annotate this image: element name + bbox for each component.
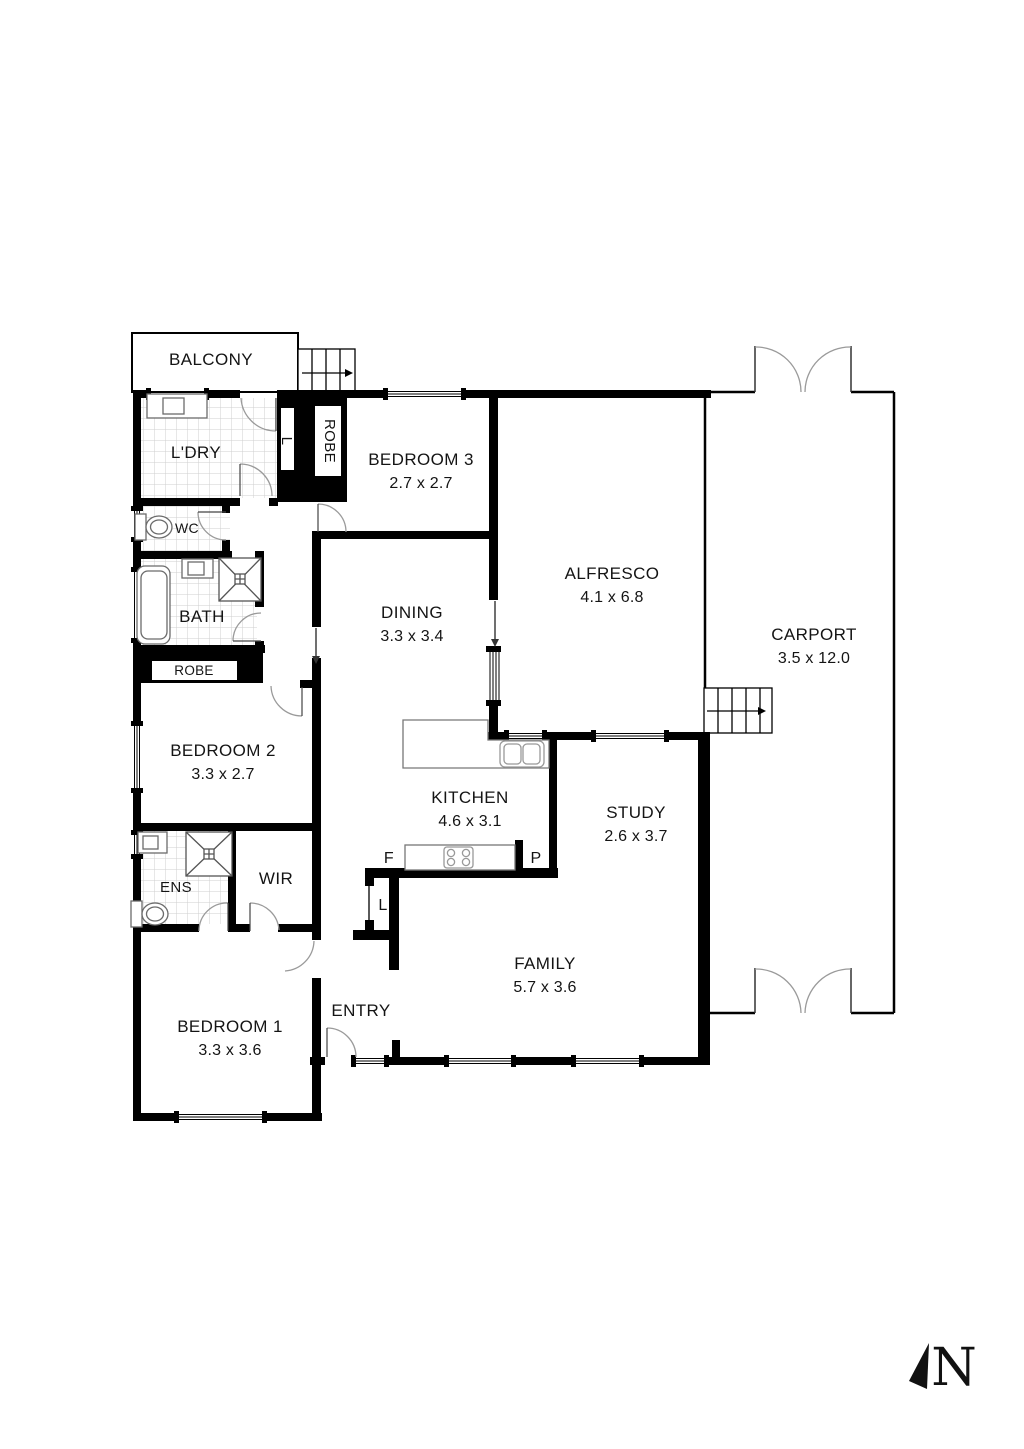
- room-label-wir: WIR: [259, 867, 293, 891]
- room-label-bath: BATH: [179, 605, 225, 629]
- bathtub-icon: [137, 566, 170, 644]
- room-dims: 3.5 x 12.0: [771, 647, 857, 671]
- room-label-dining: DINING 3.3 x 3.4: [380, 601, 443, 649]
- bath-shower-icon: [219, 558, 261, 601]
- room-name: STUDY: [604, 801, 667, 825]
- room-name: CARPORT: [771, 623, 857, 647]
- compass-north-label: N: [931, 1338, 977, 1398]
- closet-label-robe-bed2: ROBE: [174, 659, 213, 683]
- bath-vanity-icon: [182, 559, 213, 578]
- room-dims: 2.7 x 2.7: [368, 472, 474, 496]
- room-name: FAMILY: [513, 952, 576, 976]
- ens-vanity-icon: [138, 832, 167, 853]
- room-label-alfresco: ALFRESCO 4.1 x 6.8: [565, 562, 660, 610]
- room-label-family: FAMILY 5.7 x 3.6: [513, 952, 576, 1000]
- kitchen-sink-icon: [500, 741, 544, 767]
- room-name: BEDROOM 3: [368, 448, 474, 472]
- room-name: BEDROOM 2: [170, 739, 276, 763]
- floor-plan-drawing: [0, 0, 1024, 1449]
- room-dims: 2.6 x 3.7: [604, 825, 667, 849]
- closet-label-linen-hall: L: [378, 894, 387, 918]
- room-label-kitchen: KITCHEN 4.6 x 3.1: [431, 786, 508, 834]
- closet-label-linen-upper: L: [274, 437, 298, 446]
- wc-toilet-icon: [135, 514, 172, 540]
- north-arrow-icon: [909, 1343, 929, 1389]
- stairs-balcony: [298, 349, 355, 391]
- carport-gate-icons: [755, 346, 851, 1013]
- ens-shower-icon: [186, 832, 232, 876]
- room-name: BEDROOM 1: [177, 1015, 283, 1039]
- closet-label-fridge: F: [384, 847, 394, 871]
- stairs-carport: [704, 688, 772, 733]
- room-label-carport: CARPORT 3.5 x 12.0: [771, 623, 857, 671]
- room-dims: 3.3 x 3.6: [177, 1039, 283, 1063]
- room-label-study: STUDY 2.6 x 3.7: [604, 801, 667, 849]
- closet-label-pantry: P: [530, 847, 541, 871]
- room-dims: 3.3 x 2.7: [170, 763, 276, 787]
- room-name: KITCHEN: [431, 786, 508, 810]
- room-label-entry: ENTRY: [331, 999, 390, 1023]
- room-name: DINING: [380, 601, 443, 625]
- room-label-wc: WC: [175, 516, 199, 540]
- room-label-ens: ENS: [160, 876, 192, 900]
- room-label-laundry: L'DRY: [171, 441, 221, 465]
- closet-label-robe-bed3: ROBE: [317, 419, 341, 463]
- room-label-bedroom1: BEDROOM 1 3.3 x 3.6: [177, 1015, 283, 1063]
- room-name: ALFRESCO: [565, 562, 660, 586]
- room-dims: 4.1 x 6.8: [565, 586, 660, 610]
- kitchen-bench-icon: [405, 845, 515, 870]
- laundry-trough-icon: [147, 394, 207, 418]
- room-label-bedroom3: BEDROOM 3 2.7 x 2.7: [368, 448, 474, 496]
- room-dims: 4.6 x 3.1: [431, 810, 508, 834]
- room-dims: 5.7 x 3.6: [513, 976, 576, 1000]
- room-label-bedroom2: BEDROOM 2 3.3 x 2.7: [170, 739, 276, 787]
- ens-toilet-icon: [131, 901, 168, 927]
- floor-plan: BALCONY L'DRY WC BATH ROBE BEDROOM 2 3.3…: [0, 0, 1024, 1449]
- room-label-balcony: BALCONY: [169, 348, 253, 372]
- room-dims: 3.3 x 3.4: [380, 625, 443, 649]
